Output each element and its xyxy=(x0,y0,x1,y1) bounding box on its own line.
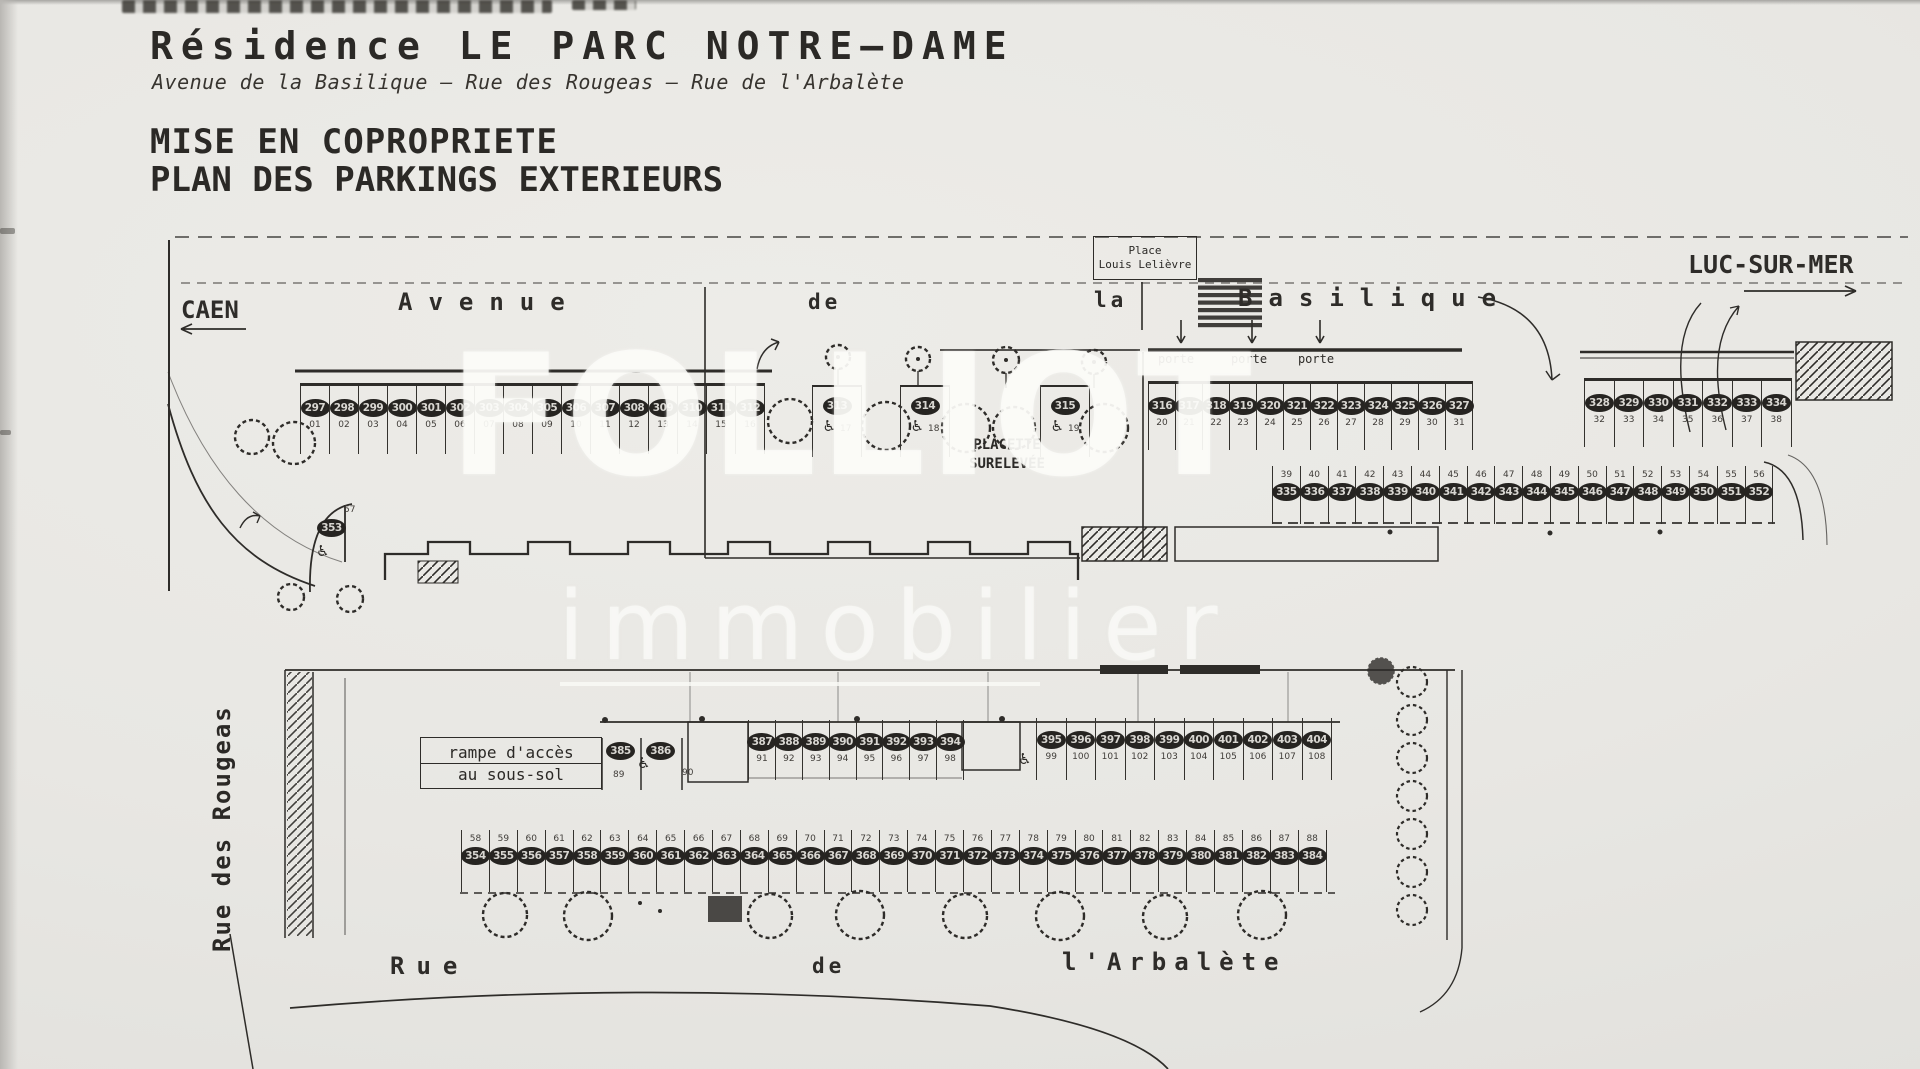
scanned-parking-plan-page: Résidence LE PARC NOTRE–DAME Avenue de l… xyxy=(0,0,1920,1069)
parking-stall: 402 106 xyxy=(1243,718,1273,780)
bay-number: 31 xyxy=(1453,418,1464,428)
bay-number: 98 xyxy=(944,754,955,764)
parking-stall: 364 68 xyxy=(740,830,768,892)
bay-number: 81 xyxy=(1111,834,1122,844)
parking-stall: 392 96 xyxy=(882,720,909,780)
bay-number: 79 xyxy=(1055,834,1066,844)
bay-number: 56 xyxy=(1753,470,1764,480)
street-label-la: la xyxy=(1094,288,1127,312)
space-number-chip: 339 xyxy=(1383,483,1412,501)
bay-number: 108 xyxy=(1308,752,1325,762)
space-number-chip: 369 xyxy=(879,847,908,865)
bay-number: 91 xyxy=(756,754,767,764)
space-number-chip: 356 xyxy=(517,847,546,865)
space-number-chip: 391 xyxy=(855,733,884,751)
space-number-chip: 390 xyxy=(828,733,857,751)
bay-number: 36 xyxy=(1712,415,1723,425)
space-number-chip: 323 xyxy=(1337,397,1366,415)
parking-stall: 368 72 xyxy=(851,830,879,892)
bay-number: 25 xyxy=(1291,418,1302,428)
space-number-chip: 340 xyxy=(1411,483,1440,501)
bay-number: 88 xyxy=(1306,834,1317,844)
parking-stall: 400 104 xyxy=(1184,718,1214,780)
bay-number: 90 xyxy=(682,768,693,778)
bay-number: 97 xyxy=(918,754,929,764)
bay-number: 72 xyxy=(860,834,871,844)
parking-stall: 299 03 xyxy=(358,386,387,454)
space-number-chip: 321 xyxy=(1283,397,1312,415)
bay-number: 40 xyxy=(1308,470,1319,480)
wheelchair-icon: ♿ xyxy=(637,756,650,771)
bay-number: 02 xyxy=(338,420,349,430)
parking-stall: 356 60 xyxy=(517,830,545,892)
space-number-chip: 375 xyxy=(1047,847,1076,865)
bay-number: 50 xyxy=(1586,470,1597,480)
bay-number: 104 xyxy=(1190,752,1207,762)
bay-number: 01 xyxy=(309,420,320,430)
space-number-chip: 297 xyxy=(301,399,330,417)
parking-stall: 377 81 xyxy=(1102,830,1130,892)
parking-stall: 397 101 xyxy=(1095,718,1125,780)
space-number-chip: 355 xyxy=(489,847,518,865)
parking-stall: 300 04 xyxy=(387,386,416,454)
space-number-chip: 301 xyxy=(417,399,446,417)
bay-number: 76 xyxy=(972,834,983,844)
space-number-chip: 342 xyxy=(1466,483,1495,501)
parking-stall: 359 63 xyxy=(600,830,628,892)
bay-number: 74 xyxy=(916,834,927,844)
street-label-rue-des-rougeas: Rue des Rougeas xyxy=(208,705,236,952)
space-number-chip: 379 xyxy=(1158,847,1187,865)
bay-number: 04 xyxy=(396,420,407,430)
bay-number: 60 xyxy=(526,834,537,844)
parking-stall: 339 43 xyxy=(1383,466,1411,524)
parking-stall: 378 82 xyxy=(1130,830,1158,892)
bay-number: 27 xyxy=(1345,418,1356,428)
parking-stall: 298 02 xyxy=(329,386,358,454)
parking-stall: 346 50 xyxy=(1578,466,1606,524)
bay-number: 05 xyxy=(425,420,436,430)
bay-number: 32 xyxy=(1594,415,1605,425)
bay-number: 94 xyxy=(837,754,848,764)
parking-stall: 341 45 xyxy=(1439,466,1467,524)
space-number-chip: 364 xyxy=(740,847,769,865)
space-number-chip: 401 xyxy=(1214,731,1243,749)
parking-row-387-394: 387 91 388 92 389 93 390 94 xyxy=(748,720,964,780)
parking-row-328-334: 328 32 329 33 330 34 331 35 xyxy=(1584,378,1792,447)
bay-number: 92 xyxy=(783,754,794,764)
space-number-chip: 368 xyxy=(851,847,880,865)
watermark-underline xyxy=(560,682,1040,686)
parking-stall: 349 53 xyxy=(1661,466,1689,524)
bay-number: 03 xyxy=(367,420,378,430)
parking-stall: 388 92 xyxy=(775,720,802,780)
space-number-chip: 352 xyxy=(1744,483,1773,501)
space-number-chip: 357 xyxy=(545,847,574,865)
bay-number: 69 xyxy=(777,834,788,844)
space-number-chip: 348 xyxy=(1633,483,1662,501)
bay-number: 68 xyxy=(749,834,760,844)
bay-number: 33 xyxy=(1623,415,1634,425)
parking-stall: 370 74 xyxy=(907,830,935,892)
street-label-de: de xyxy=(812,954,845,978)
bay-number: 96 xyxy=(891,754,902,764)
space-number-chip: 363 xyxy=(712,847,741,865)
parking-stall: 391 95 xyxy=(856,720,883,780)
space-number-chip: 336 xyxy=(1300,483,1329,501)
space-number-chip: 366 xyxy=(796,847,825,865)
wheelchair-icon: ♿ xyxy=(316,544,329,559)
parking-stall: 321 25 xyxy=(1283,384,1310,450)
parking-row-335-352: 335 39 336 40 337 41 338 42 xyxy=(1272,466,1773,524)
space-number-chip: 322 xyxy=(1310,397,1339,415)
parking-stall: 348 52 xyxy=(1633,466,1661,524)
parking-stall: 399 103 xyxy=(1154,718,1184,780)
space-number-chip: 332 xyxy=(1703,394,1732,412)
place-label: Place xyxy=(1128,244,1161,258)
street-label-de: de xyxy=(808,290,841,314)
space-number-chip: 343 xyxy=(1494,483,1523,501)
space-number-chip: 388 xyxy=(774,733,803,751)
space-number-chip: 402 xyxy=(1243,731,1272,749)
space-number-chip: 328 xyxy=(1585,394,1614,412)
parking-stall: 347 51 xyxy=(1606,466,1634,524)
bay-number: 84 xyxy=(1195,834,1206,844)
parking-stall: 369 73 xyxy=(879,830,907,892)
place-louis-lelievre-box: Place Louis Lelièvre xyxy=(1093,236,1197,280)
space-number-chip: 330 xyxy=(1644,394,1673,412)
space-number-chip: 403 xyxy=(1273,731,1302,749)
bay-number: 26 xyxy=(1318,418,1329,428)
parking-stall: 380 84 xyxy=(1186,830,1214,892)
space-number-chip: 381 xyxy=(1214,847,1243,865)
bay-number: 37 xyxy=(1741,415,1752,425)
parking-stall: 365 69 xyxy=(768,830,796,892)
space-number-chip: 384 xyxy=(1298,847,1327,865)
parking-stall: 371 75 xyxy=(935,830,963,892)
bay-number: 102 xyxy=(1131,752,1148,762)
bay-number: 39 xyxy=(1281,470,1292,480)
parking-stall: 367 71 xyxy=(824,830,852,892)
bay-number: 93 xyxy=(810,754,821,764)
space-number-chip: 378 xyxy=(1130,847,1159,865)
parking-stall: 362 66 xyxy=(684,830,712,892)
parking-stall: 373 77 xyxy=(991,830,1019,892)
parking-stall: 393 97 xyxy=(909,720,936,780)
bay-number: 53 xyxy=(1670,470,1681,480)
space-number-chip: 386 xyxy=(646,742,675,760)
parking-stall: 340 44 xyxy=(1411,466,1439,524)
space-number-chip: 350 xyxy=(1689,483,1718,501)
space-number-chip: 370 xyxy=(907,847,936,865)
bay-number: 55 xyxy=(1725,470,1736,480)
ramp-access-box: rampe d'accès au sous-sol xyxy=(420,737,602,789)
parking-stall: 332 36 xyxy=(1702,381,1732,447)
space-number-chip: 371 xyxy=(935,847,964,865)
bay-number: 85 xyxy=(1223,834,1234,844)
parking-stall: 322 26 xyxy=(1310,384,1337,450)
space-number-chip: 345 xyxy=(1550,483,1579,501)
space-number-chip: 327 xyxy=(1445,397,1474,415)
bay-number: 45 xyxy=(1447,470,1458,480)
space-number-chip: 397 xyxy=(1096,731,1125,749)
watermark-folliot: FOLLIOT xyxy=(448,318,1254,514)
bay-number: 99 xyxy=(1046,752,1057,762)
parking-stall: 387 91 xyxy=(748,720,775,780)
bay-number: 70 xyxy=(804,834,815,844)
bay-number: 105 xyxy=(1220,752,1237,762)
bay-number: 54 xyxy=(1698,470,1709,480)
space-number-chip: 361 xyxy=(656,847,685,865)
bay-number: 34 xyxy=(1653,415,1664,425)
parking-stall: 381 85 xyxy=(1214,830,1242,892)
parking-stall: 344 48 xyxy=(1522,466,1550,524)
bay-number: 83 xyxy=(1167,834,1178,844)
street-label-basilique: Basilique xyxy=(1238,284,1512,312)
space-number-chip: 324 xyxy=(1364,397,1393,415)
space-number-chip: 299 xyxy=(359,399,388,417)
space-number-chip: 395 xyxy=(1037,731,1066,749)
parking-stall: 336 40 xyxy=(1300,466,1328,524)
space-number-chip: 359 xyxy=(600,847,629,865)
parking-stall: 404 108 xyxy=(1302,718,1332,780)
space-number-chip: 353 xyxy=(317,519,346,537)
bay-number: 62 xyxy=(581,834,592,844)
parking-stall: 396 100 xyxy=(1066,718,1096,780)
parking-stall: 328 32 xyxy=(1584,381,1614,447)
parking-row-354-384: 354 58 355 59 356 60 357 61 xyxy=(461,830,1327,892)
space-number-chip: 383 xyxy=(1270,847,1299,865)
space-number-chip: 374 xyxy=(1019,847,1048,865)
space-number-chip: 349 xyxy=(1661,483,1690,501)
space-number-chip: 400 xyxy=(1184,731,1213,749)
parking-stall: 337 41 xyxy=(1328,466,1356,524)
parking-stall: 379 83 xyxy=(1158,830,1186,892)
parking-stall: 334 38 xyxy=(1761,381,1791,447)
bay-number: 49 xyxy=(1559,470,1570,480)
bay-number: 82 xyxy=(1139,834,1150,844)
bay-number: 38 xyxy=(1771,415,1782,425)
parking-stall: 383 87 xyxy=(1270,830,1298,892)
space-number-chip: 341 xyxy=(1439,483,1468,501)
bay-number: 28 xyxy=(1372,418,1383,428)
bay-number: 44 xyxy=(1420,470,1431,480)
parking-stall: 333 37 xyxy=(1732,381,1762,447)
space-number-chip: 389 xyxy=(801,733,830,751)
parking-stall: 325 29 xyxy=(1391,384,1418,450)
space-number-chip: 404 xyxy=(1302,731,1331,749)
parking-stall: 401 105 xyxy=(1213,718,1243,780)
wheelchair-icon: ♿ xyxy=(1018,752,1031,767)
parking-stall: 335 39 xyxy=(1272,466,1300,524)
bay-number: 43 xyxy=(1392,470,1403,480)
bay-number: 73 xyxy=(888,834,899,844)
bay-number: 100 xyxy=(1072,752,1089,762)
bay-number: 47 xyxy=(1503,470,1514,480)
space-number-chip: 396 xyxy=(1066,731,1095,749)
space-number-chip: 325 xyxy=(1391,397,1420,415)
parking-stall: 338 42 xyxy=(1355,466,1383,524)
parking-stall: 331 35 xyxy=(1673,381,1703,447)
parking-stall: 350 54 xyxy=(1689,466,1717,524)
parking-stall: 366 70 xyxy=(796,830,824,892)
bay-number: 52 xyxy=(1642,470,1653,480)
parking-stall: 329 33 xyxy=(1614,381,1644,447)
space-number-chip: 382 xyxy=(1242,847,1271,865)
bay-number: 106 xyxy=(1249,752,1266,762)
parking-stall: 345 49 xyxy=(1550,466,1578,524)
parking-stall: 342 46 xyxy=(1467,466,1495,524)
bay-number: 42 xyxy=(1364,470,1375,480)
street-label-avenue: Avenue xyxy=(398,288,581,316)
place-label: Louis Lelièvre xyxy=(1099,258,1192,272)
space-number-chip: 376 xyxy=(1075,847,1104,865)
parking-stall: 326 30 xyxy=(1418,384,1445,450)
parking-stall: 327 31 xyxy=(1445,384,1472,450)
space-number-chip: 394 xyxy=(936,733,965,751)
space-number-chip: 373 xyxy=(991,847,1020,865)
space-number-chip: 399 xyxy=(1155,731,1184,749)
space-number-chip: 354 xyxy=(461,847,490,865)
space-number-chip: 344 xyxy=(1522,483,1551,501)
parking-stall: 389 93 xyxy=(802,720,829,780)
space-number-chip: 377 xyxy=(1102,847,1131,865)
bay-number: 64 xyxy=(637,834,648,844)
bay-number: 86 xyxy=(1251,834,1262,844)
space-number-chip: 360 xyxy=(628,847,657,865)
bay-number: 95 xyxy=(864,754,875,764)
parking-stall: 354 58 xyxy=(461,830,489,892)
bay-number: 80 xyxy=(1083,834,1094,844)
parking-stall: 394 98 xyxy=(936,720,963,780)
watermark-immobilier: immobilier xyxy=(558,572,1235,682)
parking-stall: 361 65 xyxy=(656,830,684,892)
bay-number: 63 xyxy=(609,834,620,844)
space-number-chip: 372 xyxy=(963,847,992,865)
space-number-chip: 398 xyxy=(1125,731,1154,749)
space-number-chip: 393 xyxy=(909,733,938,751)
parking-stall: 320 24 xyxy=(1256,384,1283,450)
bay-number: 30 xyxy=(1426,418,1437,428)
space-number-chip: 347 xyxy=(1605,483,1634,501)
bay-number: 41 xyxy=(1336,470,1347,480)
parking-stall: 375 79 xyxy=(1047,830,1075,892)
space-number-chip: 331 xyxy=(1673,394,1702,412)
parking-stall: 384 88 xyxy=(1298,830,1326,892)
parking-stall: 403 107 xyxy=(1272,718,1302,780)
bay-number: 58 xyxy=(470,834,481,844)
space-number-chip: 362 xyxy=(684,847,713,865)
bay-number: 101 xyxy=(1102,752,1119,762)
bay-number: 67 xyxy=(721,834,732,844)
bay-number: 107 xyxy=(1279,752,1296,762)
parking-stall: 382 86 xyxy=(1242,830,1270,892)
space-number-chip: 385 xyxy=(606,742,635,760)
parking-stall: 398 102 xyxy=(1125,718,1155,780)
parking-stall: 357 61 xyxy=(545,830,573,892)
space-number-chip: 326 xyxy=(1418,397,1447,415)
parking-stall: 355 59 xyxy=(489,830,517,892)
space-number-chip: 334 xyxy=(1762,394,1791,412)
space-number-chip: 337 xyxy=(1328,483,1357,501)
street-label-arbalete: l'Arbalète xyxy=(1062,948,1287,976)
bay-number: 48 xyxy=(1531,470,1542,480)
parking-stall: 390 94 xyxy=(829,720,856,780)
bay-number: 24 xyxy=(1264,418,1275,428)
parking-stall: 330 34 xyxy=(1643,381,1673,447)
street-label-rue: Rue xyxy=(390,952,469,980)
parking-stall: 352 56 xyxy=(1745,466,1773,524)
bay-number: 51 xyxy=(1614,470,1625,480)
parking-row-395-404: 395 99 396 100 397 101 398 102 xyxy=(1036,718,1332,780)
bay-number: 87 xyxy=(1279,834,1290,844)
space-number-chip: 346 xyxy=(1578,483,1607,501)
space-number-chip: 333 xyxy=(1732,394,1761,412)
bay-number: 65 xyxy=(665,834,676,844)
bay-number: 103 xyxy=(1161,752,1178,762)
space-number-chip: 351 xyxy=(1717,483,1746,501)
ramp-label-line: au sous-sol xyxy=(458,764,564,784)
bay-number: 61 xyxy=(553,834,564,844)
space-number-chip: 320 xyxy=(1256,397,1285,415)
bay-number: 66 xyxy=(693,834,704,844)
parking-stall: 343 47 xyxy=(1494,466,1522,524)
space-number-chip: 367 xyxy=(824,847,853,865)
parking-stall: 358 62 xyxy=(573,830,601,892)
bay-number: 29 xyxy=(1399,418,1410,428)
space-number-chip: 392 xyxy=(882,733,911,751)
bay-number: 59 xyxy=(498,834,509,844)
bay-number: 77 xyxy=(1000,834,1011,844)
bay-number: 75 xyxy=(944,834,955,844)
parking-stall: 301 05 xyxy=(416,386,445,454)
parking-stall: 323 27 xyxy=(1337,384,1364,450)
space-number-chip: 358 xyxy=(573,847,602,865)
ramp-label-line: rampe d'accès xyxy=(421,743,601,764)
space-number-chip: 387 xyxy=(747,733,776,751)
parking-stall: 351 55 xyxy=(1717,466,1745,524)
parking-stall: 372 76 xyxy=(963,830,991,892)
bay-number: 71 xyxy=(832,834,843,844)
parking-stall: 360 64 xyxy=(628,830,656,892)
bay-number: 89 xyxy=(613,770,624,780)
bay-number: 35 xyxy=(1682,415,1693,425)
parking-stall: 395 99 xyxy=(1036,718,1066,780)
space-number-chip: 329 xyxy=(1614,394,1643,412)
space-number-chip: 365 xyxy=(768,847,797,865)
parking-stall: 376 80 xyxy=(1075,830,1103,892)
street-label-luc-sur-mer: LUC-SUR-MER xyxy=(1688,250,1854,279)
parking-stall: 374 78 xyxy=(1019,830,1047,892)
space-number-chip: 298 xyxy=(330,399,359,417)
parking-stall: 324 28 xyxy=(1364,384,1391,450)
space-number-chip: 300 xyxy=(388,399,417,417)
porte-label: porte xyxy=(1286,352,1346,366)
bay-number: 46 xyxy=(1475,470,1486,480)
space-number-chip: 335 xyxy=(1272,483,1301,501)
street-label-caen: CAEN xyxy=(181,296,239,324)
space-number-chip: 380 xyxy=(1186,847,1215,865)
space-number-chip: 338 xyxy=(1355,483,1384,501)
parking-stall: 363 67 xyxy=(712,830,740,892)
parking-stall: 297 01 xyxy=(300,386,329,454)
bay-number: 57 xyxy=(344,505,355,515)
bay-number: 78 xyxy=(1028,834,1039,844)
